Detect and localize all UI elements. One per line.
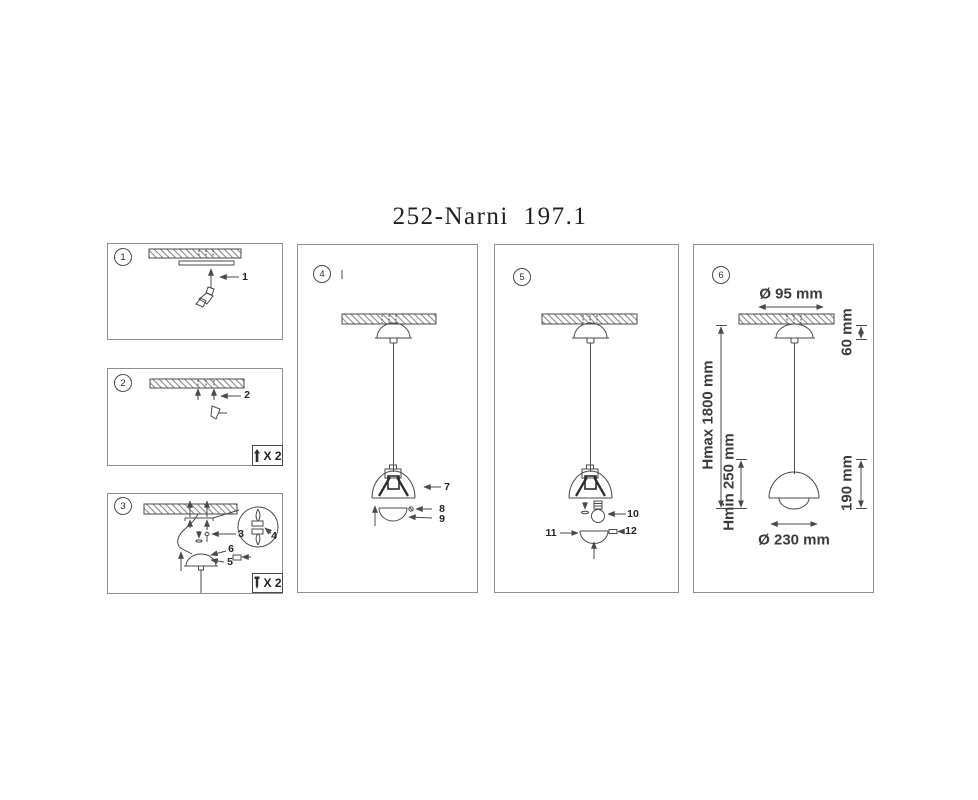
- light-bulb: [592, 501, 605, 523]
- part-label-11: 11: [545, 527, 556, 539]
- leader-part-6: [211, 551, 226, 555]
- quantity-label: X 2: [263, 449, 281, 463]
- canopy: [572, 323, 609, 343]
- dim-height-max: Hmax 1800 mm: [700, 360, 717, 469]
- step1-drawing: [108, 244, 282, 339]
- mounting-bracket: [185, 518, 213, 521]
- dim-canopy-height: 60 mm: [839, 308, 856, 356]
- panel-step-1: 1 1: [107, 243, 283, 340]
- part-label-5: 5: [227, 556, 233, 568]
- leader-part-9: [409, 517, 432, 518]
- step4-drawing: [298, 245, 477, 592]
- step-number-2: 2: [114, 374, 132, 392]
- quantity-label: X 2: [263, 576, 281, 590]
- screw-icon: [253, 576, 261, 590]
- canopy: [774, 324, 815, 343]
- dim-shade-height: 190 mm: [839, 455, 856, 511]
- step5-drawing: [495, 245, 678, 592]
- drill: [196, 269, 214, 307]
- dim-canopy-diameter: Ø 95 mm: [759, 286, 822, 303]
- step-number-1: 1: [114, 248, 132, 266]
- step-number-3: 3: [114, 497, 132, 515]
- mounting-bracket: [179, 261, 234, 265]
- panel-step-3: 3 3 4 5 6 X 2: [107, 493, 283, 594]
- step-number-4: 4: [313, 265, 331, 283]
- panel-step-2: 2 2 X 2: [107, 368, 283, 466]
- diffuser: [379, 508, 407, 521]
- part-label-2: 2: [244, 389, 250, 401]
- dowel-icon: [253, 449, 261, 463]
- panel-step-4: 4 7 8 9: [297, 244, 478, 593]
- part-label-1: 1: [242, 271, 248, 283]
- turn-icon: [196, 531, 202, 542]
- dim-shade-diameter: Ø 230 mm: [758, 532, 830, 549]
- step-number-6: 6: [712, 266, 730, 284]
- side-screw: [233, 555, 251, 560]
- part-label-9: 9: [439, 513, 445, 525]
- instruction-sheet: 252-Narni 197.1 1: [0, 0, 978, 800]
- panel-step-5: 5 10 11 12: [494, 244, 679, 593]
- dim-arrow-canopy-height: [856, 326, 867, 340]
- part-label-12: 12: [625, 525, 637, 537]
- lamp-shade: [769, 472, 819, 509]
- quantity-box-screw: X 2: [252, 573, 283, 593]
- part-label-3: 3: [238, 528, 244, 540]
- panel-step-6: 6 Ø 95 mm 60 mm Hmax 1800 mm Hmin 250 mm…: [693, 244, 874, 593]
- part-label-6: 6: [228, 543, 234, 555]
- dim-arrow-shade-height: [856, 460, 867, 509]
- step-number-5: 5: [513, 268, 531, 286]
- part-label-7: 7: [444, 481, 450, 493]
- dim-height-min: Hmin 250 mm: [721, 433, 738, 531]
- turn-icon: [582, 502, 589, 514]
- screw: [409, 507, 413, 511]
- ceiling-band: [150, 379, 244, 388]
- product-title: 252-Narni 197.1: [254, 203, 726, 231]
- wire: [178, 514, 198, 554]
- wall-plug: [211, 406, 227, 419]
- part-label-4: 4: [271, 530, 277, 542]
- diffuser: [779, 498, 809, 509]
- leader-part-5: [211, 560, 224, 562]
- part-label-10: 10: [627, 508, 639, 520]
- screw: [205, 528, 209, 542]
- ceiling-band: [149, 249, 241, 258]
- quantity-box-dowel: X 2: [252, 445, 283, 466]
- canopy: [375, 323, 412, 343]
- side-screw: [609, 530, 624, 534]
- diffuser: [580, 531, 608, 544]
